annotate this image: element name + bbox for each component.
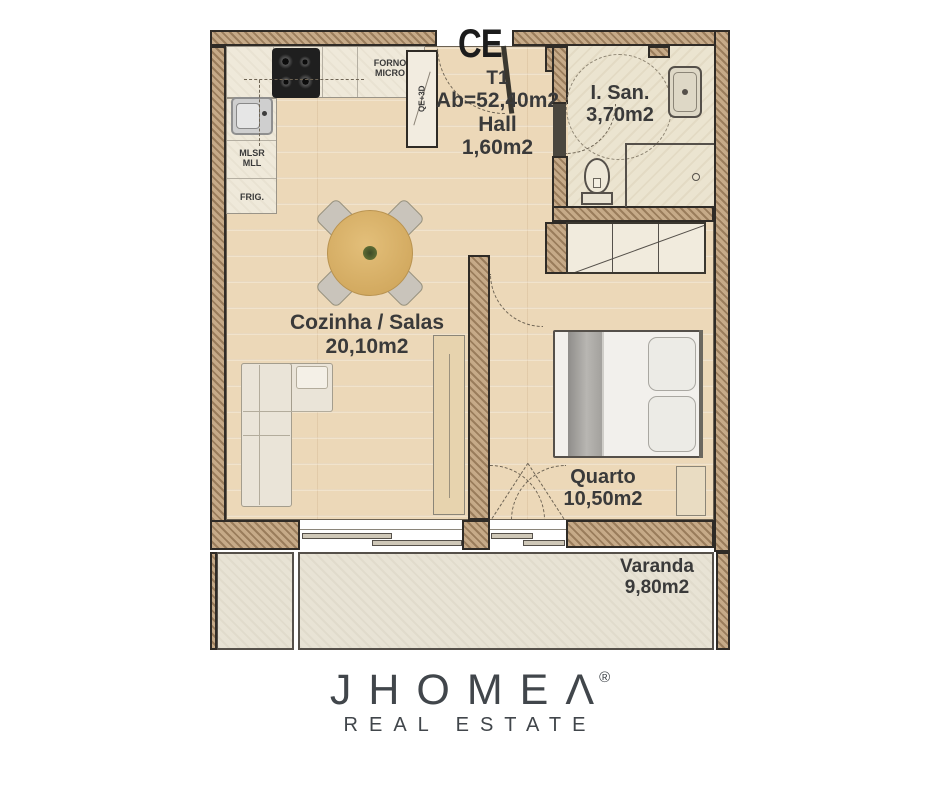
unit-type-label: T1: [425, 68, 570, 89]
bed-pillow: [648, 396, 696, 452]
tv-sideboard-line: [449, 354, 450, 498]
burner-icon: [278, 54, 293, 69]
living-label-block: Cozinha / Salas 20,10m2: [278, 311, 456, 358]
faucet-icon: [682, 89, 688, 95]
kitchen-sink-bowl: [236, 103, 260, 129]
table-plant-icon: [363, 246, 377, 260]
balcony-label-block: Varanda 9,80m2: [597, 556, 717, 599]
brand-wordmark: JHOMEΛ: [330, 666, 611, 714]
bed-blanket: [568, 332, 602, 456]
fridge-label: FRIG.: [228, 192, 276, 202]
wardrobe: [566, 222, 706, 274]
wall-bath-notch: [648, 46, 670, 58]
wall-top-right: [512, 30, 730, 46]
registered-trademark-icon: ®: [599, 669, 610, 686]
laundry-label-line1: MLSR: [239, 148, 265, 158]
toilet-bowl: [584, 158, 610, 194]
wardrobe-diagonal: [567, 223, 706, 274]
wall-bath-bottom: [552, 206, 714, 222]
counter-dashed-guide: [259, 80, 260, 146]
wall-left: [210, 46, 226, 550]
toilet-tank: [581, 192, 613, 205]
entrance-code-label: CE: [454, 22, 506, 67]
wall-balcony-pier: [462, 520, 490, 550]
hall-label-block: T1 Ab=52,40m2 Hall 1,60m2: [425, 68, 570, 160]
counter-dashed-guide: [244, 79, 364, 80]
sliding-door-panel: [523, 540, 565, 546]
wardrobe-divider: [612, 224, 613, 274]
sliding-door-panel: [302, 533, 392, 539]
wall-balcony-right: [716, 552, 730, 650]
burner-icon: [298, 74, 313, 89]
hall-name-label: Hall: [425, 113, 570, 137]
sliding-door-rail: [490, 529, 566, 530]
brand-wordmark-row: JHOMEΛ®: [0, 666, 940, 715]
hall-area-label: 1,60m2: [425, 136, 570, 160]
bed-pillow: [648, 337, 696, 391]
wall-bath-left-bottom: [552, 156, 568, 208]
wardrobe-divider: [658, 224, 659, 274]
wall-right: [714, 30, 730, 552]
unit-area-label: Ab=52,40m2: [425, 89, 570, 113]
burner-icon: [299, 56, 311, 68]
bathroom-door-leaf: [553, 104, 566, 156]
faucet-icon: [262, 111, 267, 116]
wall-bedroom-bottom: [566, 520, 714, 548]
sliding-door-panel: [372, 540, 462, 546]
bed-headboard: [699, 330, 703, 458]
floor-plan-page: FORNO MICRO MLSR MLL FRIG. QE+3D CE T1 A…: [0, 0, 940, 788]
sofa-cushion: [296, 366, 328, 389]
bed-sheet-fold: [602, 332, 604, 456]
oven-label-line2: MICRO: [375, 68, 405, 78]
nightstand: [676, 466, 706, 516]
brand-tagline: REAL ESTATE: [0, 714, 940, 737]
wall-balcony-left-edge: [210, 552, 217, 650]
living-name-label: Cozinha / Salas: [278, 311, 456, 335]
shower-partition-line-v: [625, 143, 627, 207]
balcony-area-label: 9,80m2: [597, 577, 717, 598]
shower-partition-line-h: [625, 143, 714, 145]
balcony-name-label: Varanda: [597, 556, 717, 577]
toilet-flush-button: [593, 178, 601, 188]
wall-partition-living-bedroom: [468, 255, 490, 520]
burner-icon: [280, 76, 292, 88]
tv-sideboard: [433, 335, 465, 515]
shower-drain-icon: [692, 173, 700, 181]
living-area-label: 20,10m2: [278, 335, 456, 359]
sofa-cushion-line: [243, 411, 331, 412]
wall-top-left: [210, 30, 437, 46]
wall-bottom-left-stub: [210, 520, 300, 550]
counter-divider: [227, 178, 276, 179]
counter-divider: [227, 140, 276, 141]
balcony-left-box: [216, 552, 294, 650]
oven-label-line1: FORNO: [374, 58, 407, 68]
sliding-door-panel: [491, 533, 533, 539]
laundry-label: MLSR MLL: [228, 148, 276, 169]
bathroom-name-label: I. San.: [560, 82, 680, 104]
counter-divider: [322, 47, 323, 97]
wall-bedroom-door-block: [545, 222, 568, 274]
laundry-label-line2: MLL: [243, 158, 262, 168]
sofa-cushion-line: [243, 435, 290, 436]
sliding-door-rail: [300, 529, 462, 530]
